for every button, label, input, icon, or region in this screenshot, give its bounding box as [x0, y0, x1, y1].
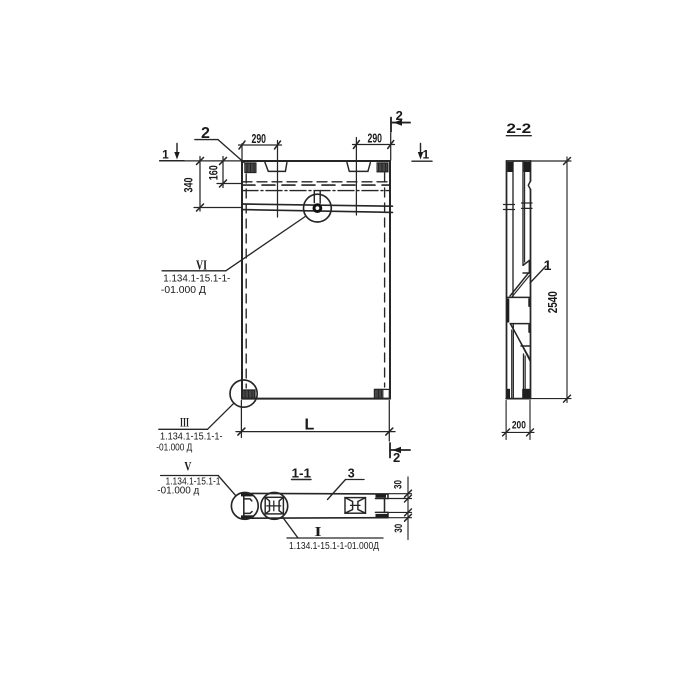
svg-text:-01.000 Д: -01.000 Д — [161, 285, 206, 296]
svg-text:1.134.1-15.1-1-: 1.134.1-15.1-1- — [163, 274, 230, 285]
svg-text:VI: VI — [196, 258, 207, 273]
svg-text:L: L — [305, 417, 315, 434]
svg-text:1: 1 — [422, 148, 429, 162]
svg-text:30: 30 — [393, 524, 405, 533]
svg-text:-01.000 д: -01.000 д — [157, 486, 199, 497]
svg-text:2540: 2540 — [546, 291, 560, 313]
svg-text:200: 200 — [512, 420, 526, 432]
svg-text:1.134.1-15.1-1-01.000Д: 1.134.1-15.1-1-01.000Д — [289, 541, 379, 552]
svg-text:I: I — [315, 525, 322, 540]
svg-text:V: V — [184, 459, 191, 474]
svg-text:340: 340 — [184, 178, 196, 193]
svg-text:160: 160 — [209, 165, 221, 180]
svg-text:30: 30 — [392, 480, 404, 489]
svg-text:2: 2 — [396, 108, 403, 123]
svg-text:1.134.1-15.1-1-: 1.134.1-15.1-1- — [160, 432, 223, 443]
svg-text:290: 290 — [368, 132, 383, 146]
svg-text:1-1: 1-1 — [292, 466, 312, 481]
svg-text:1: 1 — [162, 148, 169, 162]
svg-text:290: 290 — [252, 132, 267, 146]
svg-text:2: 2 — [393, 450, 400, 465]
svg-text:2-2: 2-2 — [506, 121, 531, 136]
svg-text:III: III — [180, 415, 189, 430]
svg-text:1: 1 — [544, 257, 552, 273]
svg-text:2: 2 — [201, 125, 210, 142]
svg-text:3: 3 — [348, 467, 355, 481]
svg-text:-01.000 Д: -01.000 Д — [156, 443, 192, 454]
